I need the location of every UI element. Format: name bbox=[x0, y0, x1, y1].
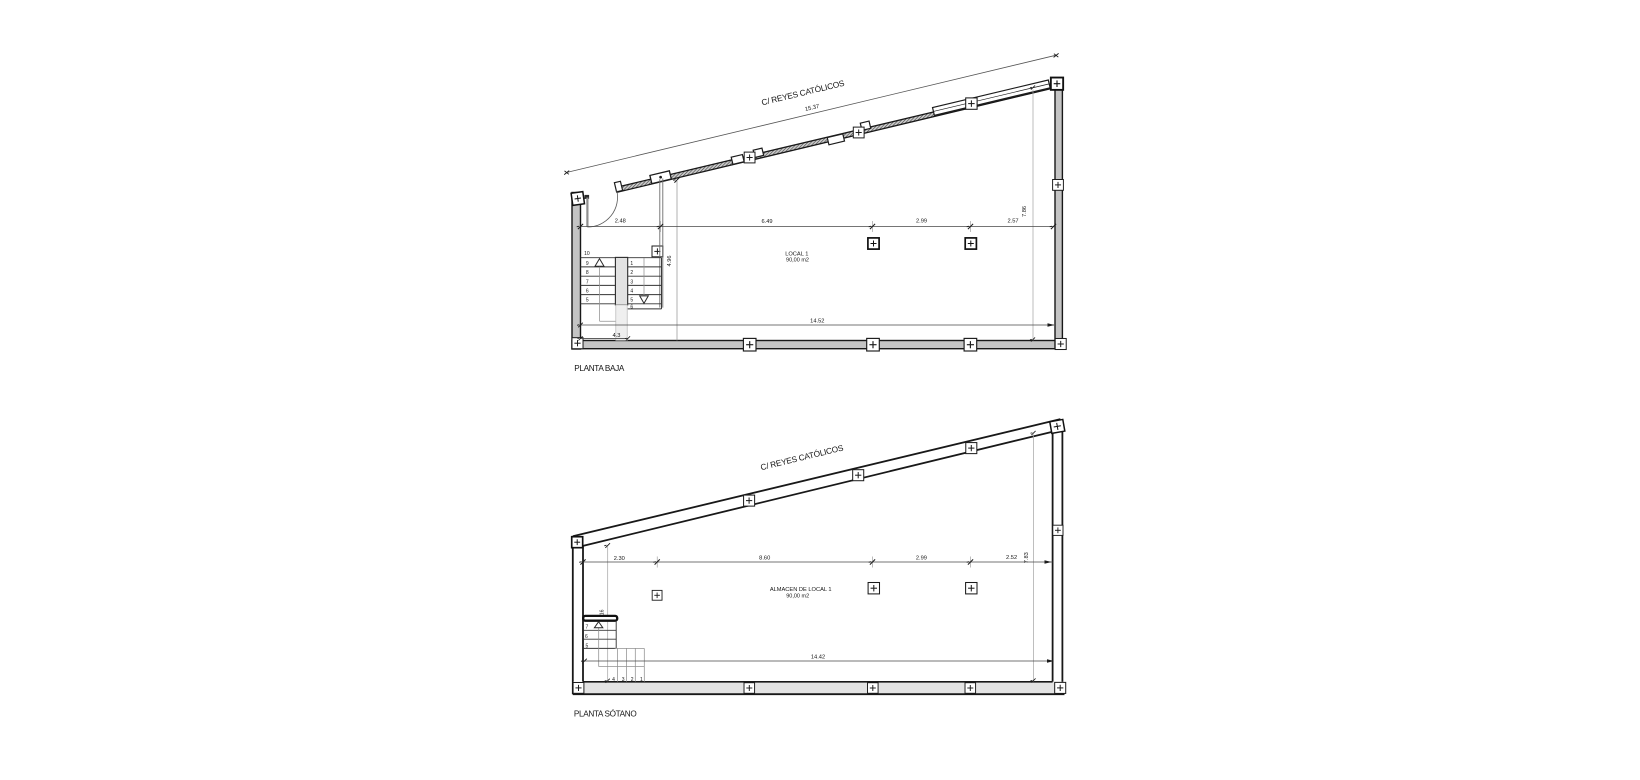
svg-text:5: 5 bbox=[630, 298, 633, 304]
svg-text:10: 10 bbox=[584, 251, 590, 257]
svg-text:5: 5 bbox=[586, 298, 589, 304]
svg-text:8: 8 bbox=[586, 270, 589, 276]
svg-text:6: 6 bbox=[585, 634, 588, 640]
svg-text:1: 1 bbox=[640, 677, 643, 683]
svg-text:4: 4 bbox=[612, 677, 615, 683]
svg-text:PLANTA BAJA: PLANTA BAJA bbox=[574, 364, 625, 373]
svg-text:ALMACEN DE LOCAL 1: ALMACEN DE LOCAL 1 bbox=[770, 587, 832, 593]
svg-text:90,00 m2: 90,00 m2 bbox=[786, 258, 809, 264]
svg-text:4.96: 4.96 bbox=[667, 255, 673, 266]
svg-text:6: 6 bbox=[630, 304, 633, 310]
svg-text:2: 2 bbox=[630, 270, 633, 276]
svg-text:14.42: 14.42 bbox=[811, 655, 825, 661]
svg-text:14.52: 14.52 bbox=[810, 319, 824, 325]
svg-text:PLANTA SÓTANO: PLANTA SÓTANO bbox=[574, 709, 636, 719]
svg-text:2.99: 2.99 bbox=[916, 555, 927, 561]
svg-text:2.48: 2.48 bbox=[615, 219, 626, 225]
svg-text:3: 3 bbox=[622, 677, 625, 683]
svg-text:7.83: 7.83 bbox=[1024, 552, 1030, 563]
svg-text:16: 16 bbox=[600, 609, 606, 615]
svg-text:8.60: 8.60 bbox=[759, 556, 770, 562]
svg-text:6.49: 6.49 bbox=[761, 219, 772, 225]
svg-text:2.57: 2.57 bbox=[1007, 218, 1018, 224]
svg-text:7.86: 7.86 bbox=[1022, 206, 1028, 217]
svg-text:3: 3 bbox=[630, 279, 633, 285]
svg-text:2.99: 2.99 bbox=[916, 219, 927, 225]
svg-text:4.3: 4.3 bbox=[613, 333, 621, 339]
svg-text:2.52: 2.52 bbox=[1006, 555, 1017, 561]
svg-text:7: 7 bbox=[586, 625, 589, 631]
svg-text:1: 1 bbox=[630, 261, 633, 267]
svg-text:2: 2 bbox=[631, 677, 634, 683]
svg-text:90,00 m2: 90,00 m2 bbox=[786, 593, 809, 599]
svg-text:6: 6 bbox=[586, 289, 589, 295]
svg-text:7: 7 bbox=[586, 279, 589, 285]
svg-text:5: 5 bbox=[586, 643, 589, 649]
svg-text:4: 4 bbox=[630, 289, 633, 295]
svg-text:2.30: 2.30 bbox=[614, 556, 625, 562]
svg-text:9: 9 bbox=[586, 261, 589, 267]
